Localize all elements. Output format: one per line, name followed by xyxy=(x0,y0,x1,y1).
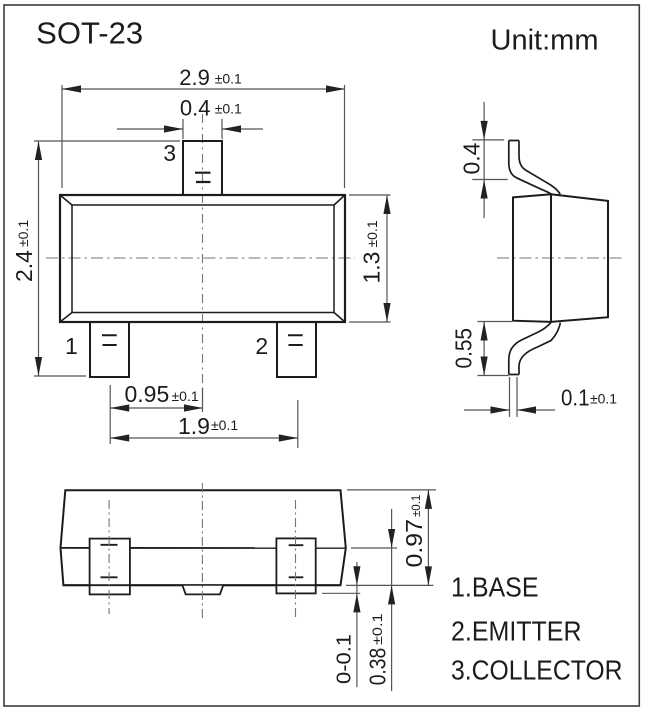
svg-text:2.4: 2.4 xyxy=(11,250,37,282)
svg-text:2.9: 2.9 xyxy=(179,65,210,90)
svg-text:0.38: 0.38 xyxy=(365,648,391,686)
svg-text:0.97: 0.97 xyxy=(401,519,427,568)
svg-text:±0.1: ±0.1 xyxy=(215,71,242,87)
svg-text:1.9: 1.9 xyxy=(178,413,210,439)
svg-text:0.1: 0.1 xyxy=(561,385,590,411)
svg-text:±0.1: ±0.1 xyxy=(369,613,385,645)
svg-text:0.4: 0.4 xyxy=(180,96,211,121)
svg-text:3.COLLECTOR: 3.COLLECTOR xyxy=(451,655,623,686)
svg-text:Unit:mm: Unit:mm xyxy=(491,25,599,57)
svg-text:±0.1: ±0.1 xyxy=(364,220,380,247)
svg-text:SOT-23: SOT-23 xyxy=(36,16,143,51)
svg-text:0.95: 0.95 xyxy=(125,381,170,407)
svg-text:±0.1: ±0.1 xyxy=(411,495,423,517)
svg-text:0.4: 0.4 xyxy=(459,142,485,174)
svg-text:±0.1: ±0.1 xyxy=(211,417,238,433)
svg-text:2.EMITTER: 2.EMITTER xyxy=(451,616,582,647)
svg-text:±0.1: ±0.1 xyxy=(15,220,31,247)
svg-text:±0.1: ±0.1 xyxy=(215,101,242,117)
svg-text:±0.1: ±0.1 xyxy=(590,391,617,407)
svg-text:3: 3 xyxy=(163,140,176,166)
svg-text:0-0.1: 0-0.1 xyxy=(334,634,356,684)
svg-text:1: 1 xyxy=(65,333,78,359)
svg-text:2: 2 xyxy=(255,333,268,359)
svg-text:1.BASE: 1.BASE xyxy=(451,572,539,603)
svg-text:1.3: 1.3 xyxy=(359,252,385,284)
svg-text:0.55: 0.55 xyxy=(451,328,477,369)
svg-text:±0.1: ±0.1 xyxy=(172,388,199,404)
